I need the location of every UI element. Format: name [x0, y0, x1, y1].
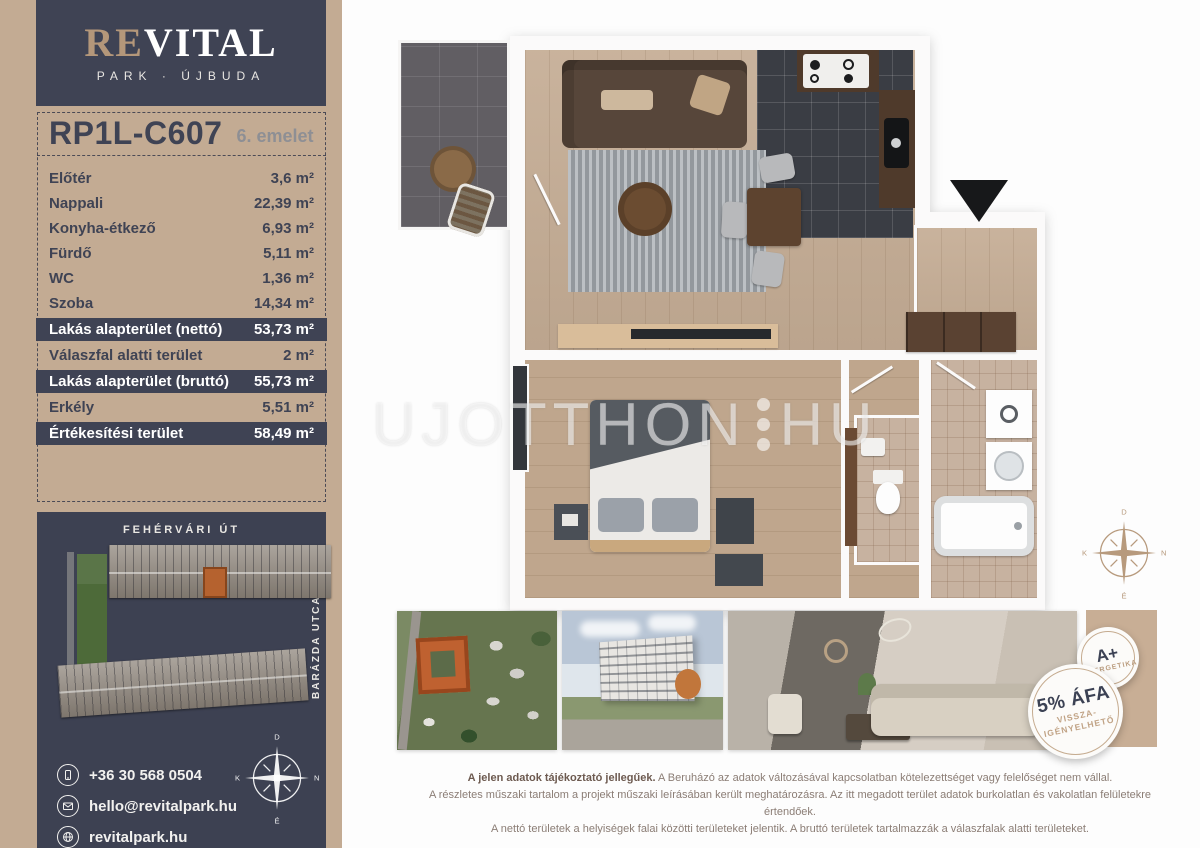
brand-subtitle: PARK · ÚJBUDA	[97, 69, 265, 83]
envelope-icon	[57, 795, 79, 817]
disclaimer-line-3: A nettó területek a helyiségek falai köz…	[408, 821, 1172, 838]
bedroom-window	[513, 366, 527, 470]
area-label: Lakás alapterület (nettó)	[49, 318, 222, 341]
interior-mirror	[824, 639, 848, 663]
bed-pillow	[598, 498, 644, 532]
contact-phone[interactable]: +36 30 568 0504	[57, 764, 237, 786]
area-value: 3,6 m²	[271, 166, 314, 191]
area-value: 1,36 m²	[262, 266, 314, 291]
disclaimer-line-2: A részletes műszaki tartalom a projekt m…	[408, 787, 1172, 821]
wardrobe	[906, 312, 1016, 352]
dining-table	[747, 188, 801, 246]
compass-rose-white: D NY É K	[235, 730, 319, 826]
area-row: Nappali 22,39 m²	[49, 191, 314, 216]
area-label: Előtér	[49, 166, 92, 191]
area-label: Szoba	[49, 291, 93, 316]
kitchen-sink	[884, 118, 909, 168]
svg-text:K: K	[1082, 549, 1087, 558]
area-row: Válaszfal alatti terület 2 m²	[49, 343, 314, 368]
building-render-photo	[562, 611, 723, 750]
globe-icon	[57, 826, 79, 848]
area-label: Nappali	[49, 191, 103, 216]
contact-email[interactable]: hello@revitalpark.hu	[57, 795, 237, 817]
area-row: Lakás alapterület (bruttó) 55,73 m²	[36, 370, 327, 393]
area-value: 22,39 m²	[254, 191, 314, 216]
dining-chair	[721, 201, 749, 239]
area-row: Erkély 5,51 m²	[49, 395, 314, 420]
entrance-arrow-icon	[950, 180, 1008, 222]
render-tree	[675, 669, 701, 699]
area-value: 6,93 m²	[262, 216, 314, 241]
vat-badge-subtitle: VISSZA- IGÉNYELHETŐ	[1039, 704, 1116, 741]
coffee-table	[618, 182, 672, 236]
area-label: Erkély	[49, 395, 94, 420]
area-label: Válaszfal alatti terület	[49, 343, 202, 368]
nightstand	[716, 498, 754, 544]
area-row: WC 1,36 m²	[49, 266, 314, 291]
bed-throw	[590, 400, 710, 471]
phone-icon	[57, 764, 79, 786]
area-value: 5,51 m²	[262, 395, 314, 420]
bathtub	[934, 496, 1034, 556]
area-value: 58,49 m²	[254, 422, 314, 445]
area-row: Szoba 14,34 m²	[49, 291, 314, 316]
vat-badge-title: 5% ÁFA	[1035, 682, 1112, 719]
highlighted-unit-marker	[203, 567, 227, 598]
area-value: 2 m²	[283, 343, 314, 368]
area-value: 53,73 m²	[254, 318, 314, 341]
area-row: Lakás alapterület (nettó) 53,73 m²	[36, 318, 327, 341]
unit-floor: 6. emelet	[236, 120, 313, 147]
area-label: Lakás alapterület (bruttó)	[49, 370, 229, 393]
unit-code: RP1L-C607	[49, 115, 222, 152]
area-label: Konyha-étkező	[49, 216, 156, 241]
svg-text:K: K	[235, 774, 240, 783]
svg-text:NY: NY	[314, 774, 319, 783]
bed-frame	[590, 540, 710, 552]
svg-text:D: D	[274, 732, 280, 741]
bed	[590, 400, 710, 552]
area-label: WC	[49, 266, 74, 291]
area-table: Előtér 3,6 m² Nappali 22,39 m² Konyha-ét…	[37, 162, 326, 451]
bedroom-bench	[715, 554, 763, 586]
disclaimer: A jelen adatok tájékoztató jellegűek. A …	[408, 770, 1172, 838]
street-label-top: FEHÉRVÁRI ÚT	[37, 524, 326, 536]
area-row: Értékesítési terület 58,49 m²	[36, 422, 327, 445]
bed-pillow	[652, 498, 698, 532]
dining-chair	[751, 250, 785, 288]
floor-plan-image	[393, 30, 1048, 612]
brand-logo: REVITAL PARK · ÚJBUDA	[36, 0, 326, 106]
area-label: Értékesítési terület	[49, 422, 183, 445]
compass-rose-tan: D NY É K	[1082, 505, 1166, 601]
tv	[631, 329, 771, 339]
site-plan-panel: FEHÉRVÁRI ÚT BARÁZDA UTCA +36 30 568 050…	[37, 512, 326, 848]
area-label: Fürdő	[49, 241, 92, 266]
aerial-highlighted-building	[416, 636, 471, 695]
area-row: Konyha-étkező 6,93 m²	[49, 216, 314, 241]
vat-badge: 5% ÁFA VISSZA- IGÉNYELHETŐ	[1028, 664, 1123, 759]
contact-block: +36 30 568 0504 hello@revitalpark.hu rev…	[57, 764, 237, 848]
disclaimer-line-1: A jelen adatok tájékoztató jellegűek. A …	[408, 770, 1172, 787]
hall-cabinet	[845, 428, 857, 546]
interior-chair	[768, 694, 802, 734]
area-row: Fürdő 5,11 m²	[49, 241, 314, 266]
interior-sofa	[871, 684, 1041, 736]
interior-lamp	[875, 614, 914, 646]
svg-text:É: É	[1121, 591, 1126, 600]
site-building-north	[109, 545, 331, 598]
area-value: 5,11 m²	[263, 241, 314, 266]
cooktop	[803, 54, 869, 88]
contact-website[interactable]: revitalpark.hu	[57, 826, 237, 848]
area-row: Előtér 3,6 m²	[49, 166, 314, 191]
svg-text:D: D	[1121, 507, 1127, 516]
toilet	[876, 482, 900, 514]
interior-photo	[728, 611, 1077, 750]
unit-header: RP1L-C607 6. emelet	[37, 112, 326, 156]
bathroom-sink	[986, 442, 1032, 490]
washing-machine	[986, 390, 1032, 438]
svg-text:NY: NY	[1161, 549, 1166, 558]
area-value: 55,73 m²	[254, 370, 314, 393]
nightstand	[554, 504, 588, 540]
wc-sink	[861, 438, 885, 456]
area-value: 14,34 m²	[254, 291, 314, 316]
sofa-cushion	[601, 90, 653, 110]
flyer-page: REVITAL PARK · ÚJBUDA RP1L-C607 6. emele…	[0, 0, 1200, 848]
svg-text:É: É	[274, 816, 279, 825]
brand-logo-text: REVITAL	[84, 23, 277, 63]
aerial-photo	[397, 611, 557, 750]
